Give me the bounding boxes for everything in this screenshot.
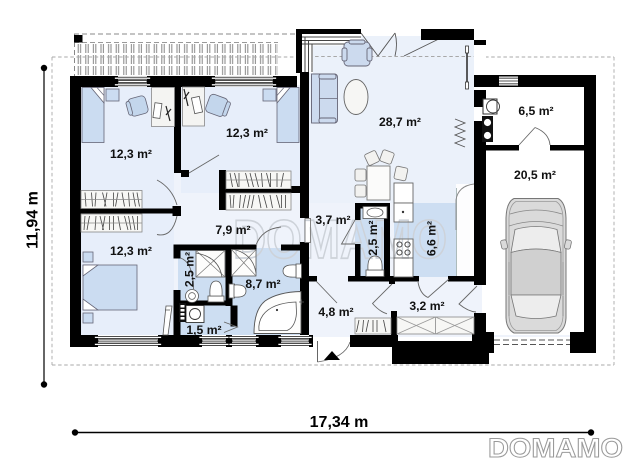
svg-text:1,5 m²: 1,5 m² [186, 323, 221, 337]
svg-text:17,34 m: 17,34 m [310, 414, 369, 431]
svg-text:6,6 m²: 6,6 m² [425, 221, 439, 256]
svg-text:2,5 m²: 2,5 m² [183, 252, 197, 287]
svg-text:3,2 m²: 3,2 m² [409, 299, 444, 313]
svg-text:28,7 m²: 28,7 m² [379, 115, 421, 129]
svg-text:6,5 m²: 6,5 m² [518, 104, 553, 118]
svg-text:7,9 m²: 7,9 m² [215, 223, 250, 237]
svg-text:4,8 m²: 4,8 m² [318, 305, 353, 319]
svg-text:12,3 m²: 12,3 m² [110, 147, 152, 161]
svg-text:DOMAMO: DOMAMO [488, 433, 623, 462]
svg-text:8,7 m²: 8,7 m² [245, 277, 280, 291]
svg-text:12,3 m²: 12,3 m² [226, 126, 268, 140]
svg-text:20,5 m²: 20,5 m² [514, 168, 556, 182]
svg-text:2,5 m²: 2,5 m² [366, 220, 380, 255]
svg-text:11,94 m: 11,94 m [25, 191, 42, 249]
svg-text:3,7 m²: 3,7 m² [315, 213, 350, 227]
svg-text:12,3 m²: 12,3 m² [110, 244, 152, 258]
